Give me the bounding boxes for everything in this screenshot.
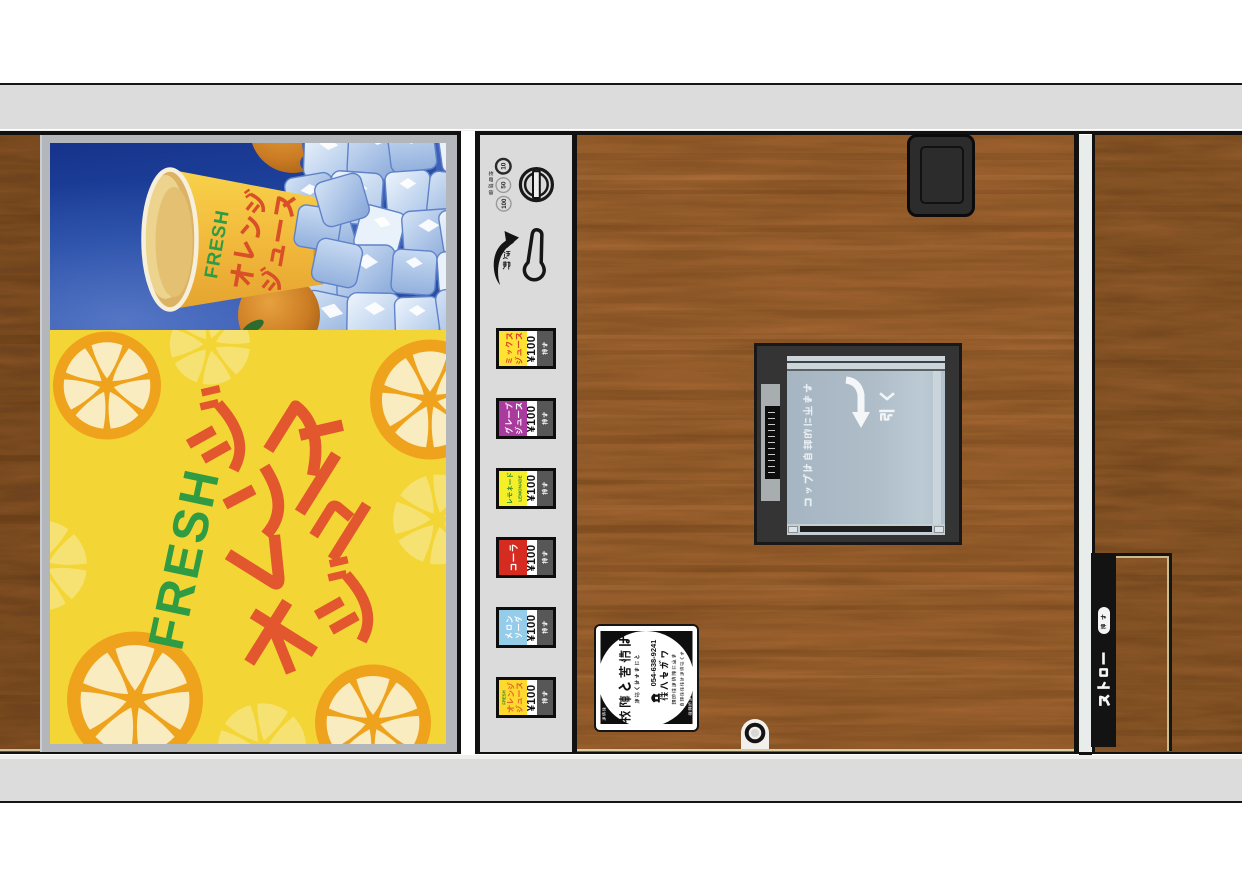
svg-text:054-638-9241: 054-638-9241 bbox=[649, 640, 658, 687]
svg-text:10: 10 bbox=[501, 162, 508, 170]
svg-text:100: 100 bbox=[502, 198, 508, 209]
svg-text:50: 50 bbox=[501, 181, 508, 189]
svg-text:FRESH: FRESH bbox=[502, 690, 507, 704]
svg-text:LEMONADE: LEMONADE bbox=[518, 475, 523, 501]
